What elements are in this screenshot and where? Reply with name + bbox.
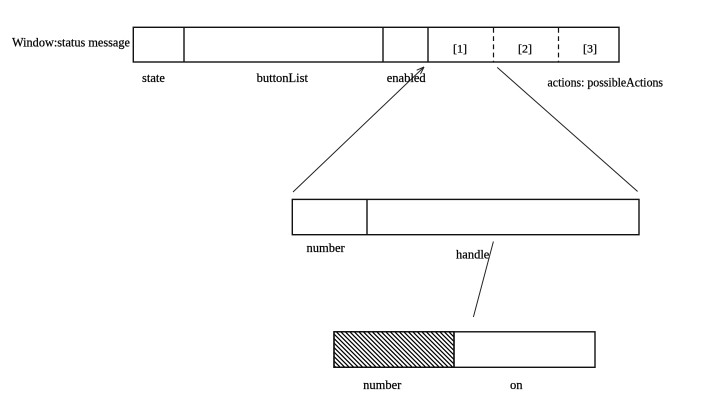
svg-text:number: number [363, 378, 402, 392]
svg-text:enabled: enabled [387, 71, 427, 85]
svg-text:handle: handle [456, 248, 490, 262]
svg-text:actions: possibleActions: actions: possibleActions [548, 76, 664, 90]
svg-text:Window:status message: Window:status message [12, 35, 130, 50]
svg-text:buttonList: buttonList [257, 71, 309, 85]
svg-text:on: on [510, 378, 523, 392]
svg-text:[2]: [2] [518, 42, 532, 56]
svg-text:number: number [307, 241, 346, 255]
svg-text:[3]: [3] [583, 42, 597, 56]
svg-text:[1]: [1] [453, 42, 467, 56]
svg-text:state: state [142, 71, 165, 85]
